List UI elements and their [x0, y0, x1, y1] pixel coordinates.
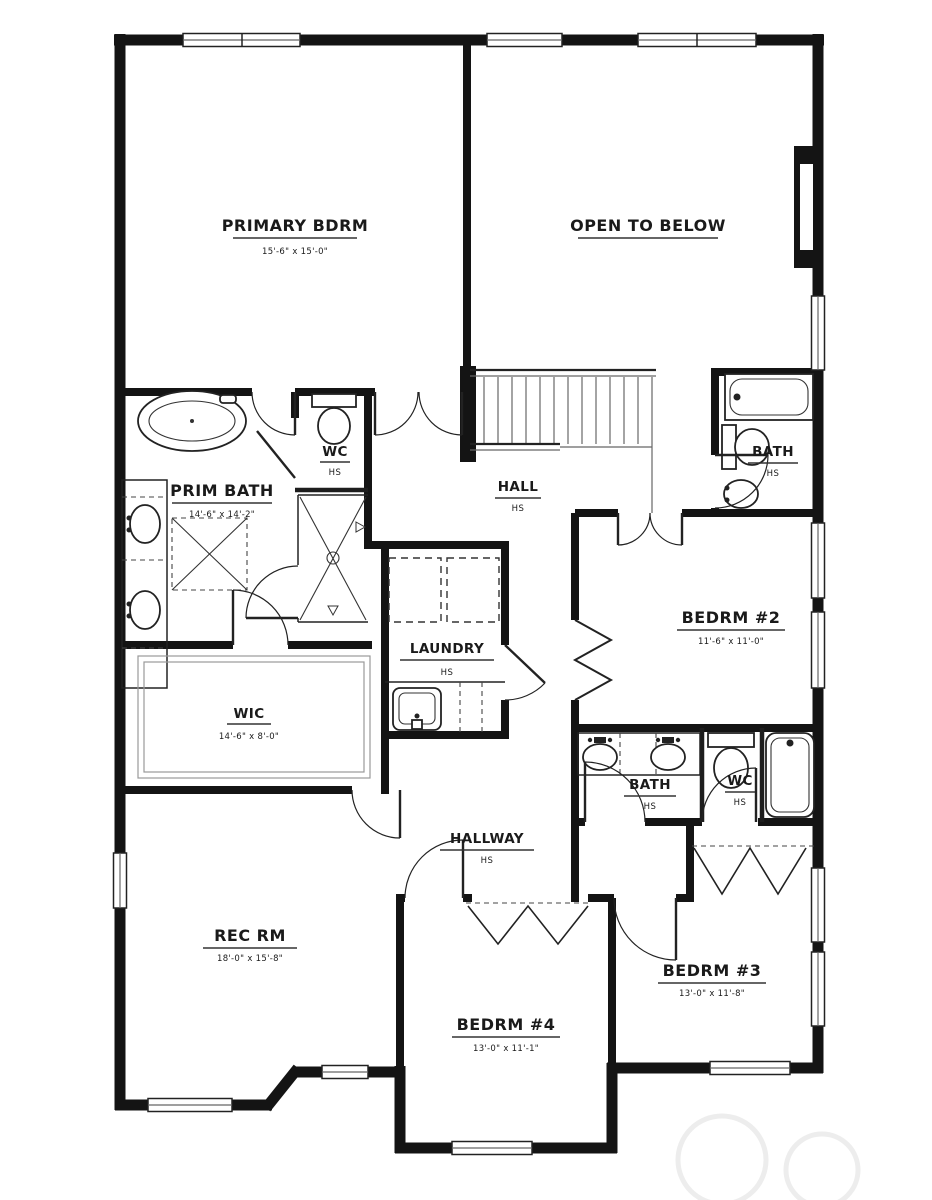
svg-text:HS: HS [512, 504, 525, 514]
room-label-bedrm4: BEDRM #4 13'-0" x 11'-1" [452, 1015, 560, 1054]
svg-text:14'-6" x 8'-0": 14'-6" x 8'-0" [219, 732, 279, 742]
door-wc-top [257, 431, 295, 478]
dryer-icon [447, 558, 499, 622]
room-label-laundry: LAUNDRY HS [400, 641, 494, 678]
room-label-open-to-below: OPEN TO BELOW [570, 216, 726, 238]
svg-text:PRIMARY BDRM: PRIMARY BDRM [222, 216, 369, 235]
laundry-sink-icon [393, 688, 441, 730]
svg-text:WC: WC [322, 444, 348, 460]
bathtub-icon [725, 374, 813, 420]
toilet-icon [312, 394, 356, 444]
window [710, 1062, 790, 1075]
double-door-bedrm2 [618, 513, 682, 545]
svg-text:HS: HS [644, 802, 657, 812]
room-label-prim-bath: PRIM BATH 14'-6" x 14'-2" [170, 481, 274, 520]
freestanding-tub-icon [138, 391, 246, 451]
bifold-door-icon [468, 906, 588, 944]
room-label-bath-mid: BATH HS [624, 777, 676, 812]
mid-bath-fixtures [578, 733, 814, 817]
window [487, 34, 562, 47]
window [812, 952, 825, 1026]
watermark-circles [678, 1116, 858, 1200]
svg-text:HS: HS [734, 798, 747, 808]
svg-text:LAUNDRY: LAUNDRY [410, 641, 484, 657]
window [812, 296, 825, 370]
svg-text:WC: WC [727, 773, 753, 789]
door-bedrm4 [405, 840, 463, 898]
double-door-primary [375, 392, 462, 435]
window [148, 1099, 232, 1112]
window [322, 1066, 368, 1079]
window [812, 523, 825, 598]
interior-walls [116, 40, 822, 1075]
room-label-hallway: HALLWAY HS [440, 831, 534, 866]
floor-plan-page: PRIMARY BDRM 15'-6" x 15'-0" OPEN TO BEL… [0, 0, 932, 1200]
window [183, 34, 300, 47]
floor-plan-drawing: PRIMARY BDRM 15'-6" x 15'-0" OPEN TO BEL… [0, 0, 932, 1200]
window [812, 868, 825, 942]
room-label-hall: HALL HS [495, 479, 541, 514]
bathtub-icon [766, 733, 814, 817]
svg-text:11'-6" x 11'-0": 11'-6" x 11'-0" [698, 637, 764, 647]
svg-text:13'-0" x 11'-8": 13'-0" x 11'-8" [679, 989, 745, 999]
door-bedrm3 [614, 898, 676, 960]
svg-text:BATH: BATH [752, 444, 794, 460]
svg-text:PRIM BATH: PRIM BATH [170, 481, 274, 500]
room-label-rec-rm: REC RM 18'-0" x 15'-8" [203, 926, 297, 964]
svg-text:HS: HS [767, 469, 780, 479]
shower-icon [298, 495, 368, 622]
sink-icon [583, 737, 617, 770]
washer-icon [389, 558, 441, 622]
room-label-wc-mid: WC HS [725, 773, 755, 808]
svg-text:14'-6" x 14'-2": 14'-6" x 14'-2" [189, 510, 255, 520]
svg-text:BEDRM #2: BEDRM #2 [682, 608, 781, 627]
room-label-primary-bdrm: PRIMARY BDRM 15'-6" x 15'-0" [222, 216, 369, 257]
door-laundry [505, 645, 545, 700]
door-shower [246, 566, 298, 618]
svg-text:BEDRM #3: BEDRM #3 [663, 961, 762, 980]
window [812, 612, 825, 688]
door-rec-rm [352, 790, 400, 838]
sink-icon [651, 737, 685, 770]
room-labels: PRIMARY BDRM 15'-6" x 15'-0" OPEN TO BEL… [170, 216, 798, 1054]
window [114, 853, 127, 908]
svg-text:BATH: BATH [629, 777, 671, 793]
room-label-wic: WIC 14'-6" x 8'-0" [219, 706, 279, 742]
bifold-door-icon [575, 620, 611, 700]
double-vanity-icon [122, 480, 167, 688]
door-prim-bath [252, 392, 295, 435]
window [638, 34, 756, 47]
svg-text:OPEN TO BELOW: OPEN TO BELOW [570, 216, 726, 235]
room-label-bedrm3: BEDRM #3 13'-0" x 11'-8" [658, 961, 766, 999]
svg-text:HS: HS [481, 856, 494, 866]
svg-text:13'-0" x 11'-1": 13'-0" x 11'-1" [473, 1044, 539, 1054]
top-bath-fixtures [722, 374, 813, 508]
svg-text:HALLWAY: HALLWAY [450, 831, 524, 847]
bifold-door-icon [694, 848, 806, 894]
svg-text:HS: HS [329, 468, 342, 478]
svg-text:15'-6" x 15'-0": 15'-6" x 15'-0" [262, 247, 328, 257]
svg-text:18'-0" x 15'-8": 18'-0" x 15'-8" [217, 954, 283, 964]
room-label-bedrm2: BEDRM #2 11'-6" x 11'-0" [677, 608, 785, 647]
svg-text:HS: HS [441, 668, 454, 678]
sink-icon [724, 480, 758, 508]
room-label-wc-top: WC HS [320, 444, 350, 478]
svg-text:WIC: WIC [233, 706, 264, 722]
svg-text:BEDRM #4: BEDRM #4 [457, 1015, 556, 1034]
svg-text:HALL: HALL [498, 479, 539, 495]
svg-text:REC RM: REC RM [214, 926, 286, 945]
optional-shower-dashed-icon [172, 518, 247, 590]
window [452, 1142, 532, 1155]
